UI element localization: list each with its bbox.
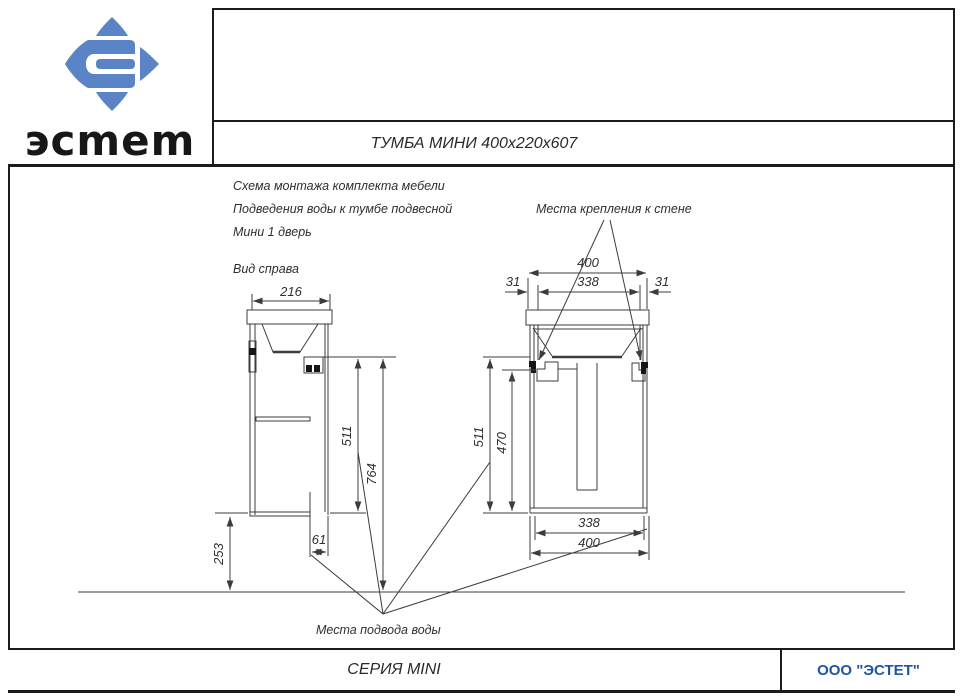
wall-mount-label: Места крепления к стене (536, 202, 692, 216)
side-view: 216 61 (211, 284, 396, 590)
water-supply-label: Места подвода воды (316, 623, 441, 637)
dim-side-height-total: 764 (364, 463, 379, 485)
dim-side-water-offset: 61 (312, 532, 326, 547)
dim-front-width-top: 400 (577, 255, 599, 270)
technical-drawing: Схема монтажа комплекта мебели Подведени… (0, 0, 970, 699)
dim-front-height-water: 470 (494, 431, 509, 453)
series-label: СЕРИЯ MINI (8, 650, 780, 690)
note-line3: Мини 1 дверь (233, 225, 312, 239)
company-name: ООО "ЭСТЕТ" (817, 662, 920, 679)
drawing-sheet: эсmem ТУМБА МИНИ 400x220x607 Схема монта… (0, 0, 970, 699)
dim-side-bottom-height: 253 (211, 542, 226, 565)
dim-front-height-bracket: 511 (471, 427, 486, 448)
dim-front-margin-left: 31 (506, 274, 520, 289)
dim-side-height-bracket: 511 (339, 426, 354, 447)
dim-front-margin-right: 31 (655, 274, 669, 289)
dim-front-bracket-span: 338 (577, 274, 599, 289)
note-line2: Подведения воды к тумбе подвесной (233, 202, 452, 216)
side-view-label: Вид справа (233, 262, 299, 276)
front-view: 400 338 31 31 511 (471, 255, 671, 560)
title-block-footer: СЕРИЯ MINI ООО "ЭСТЕТ" (8, 648, 955, 693)
dim-front-bottom-span: 338 (578, 515, 600, 530)
company-label: ООО "ЭСТЕТ" (780, 650, 955, 690)
dim-side-depth: 216 (279, 284, 302, 299)
note-line1: Схема монтажа комплекта мебели (233, 179, 445, 193)
